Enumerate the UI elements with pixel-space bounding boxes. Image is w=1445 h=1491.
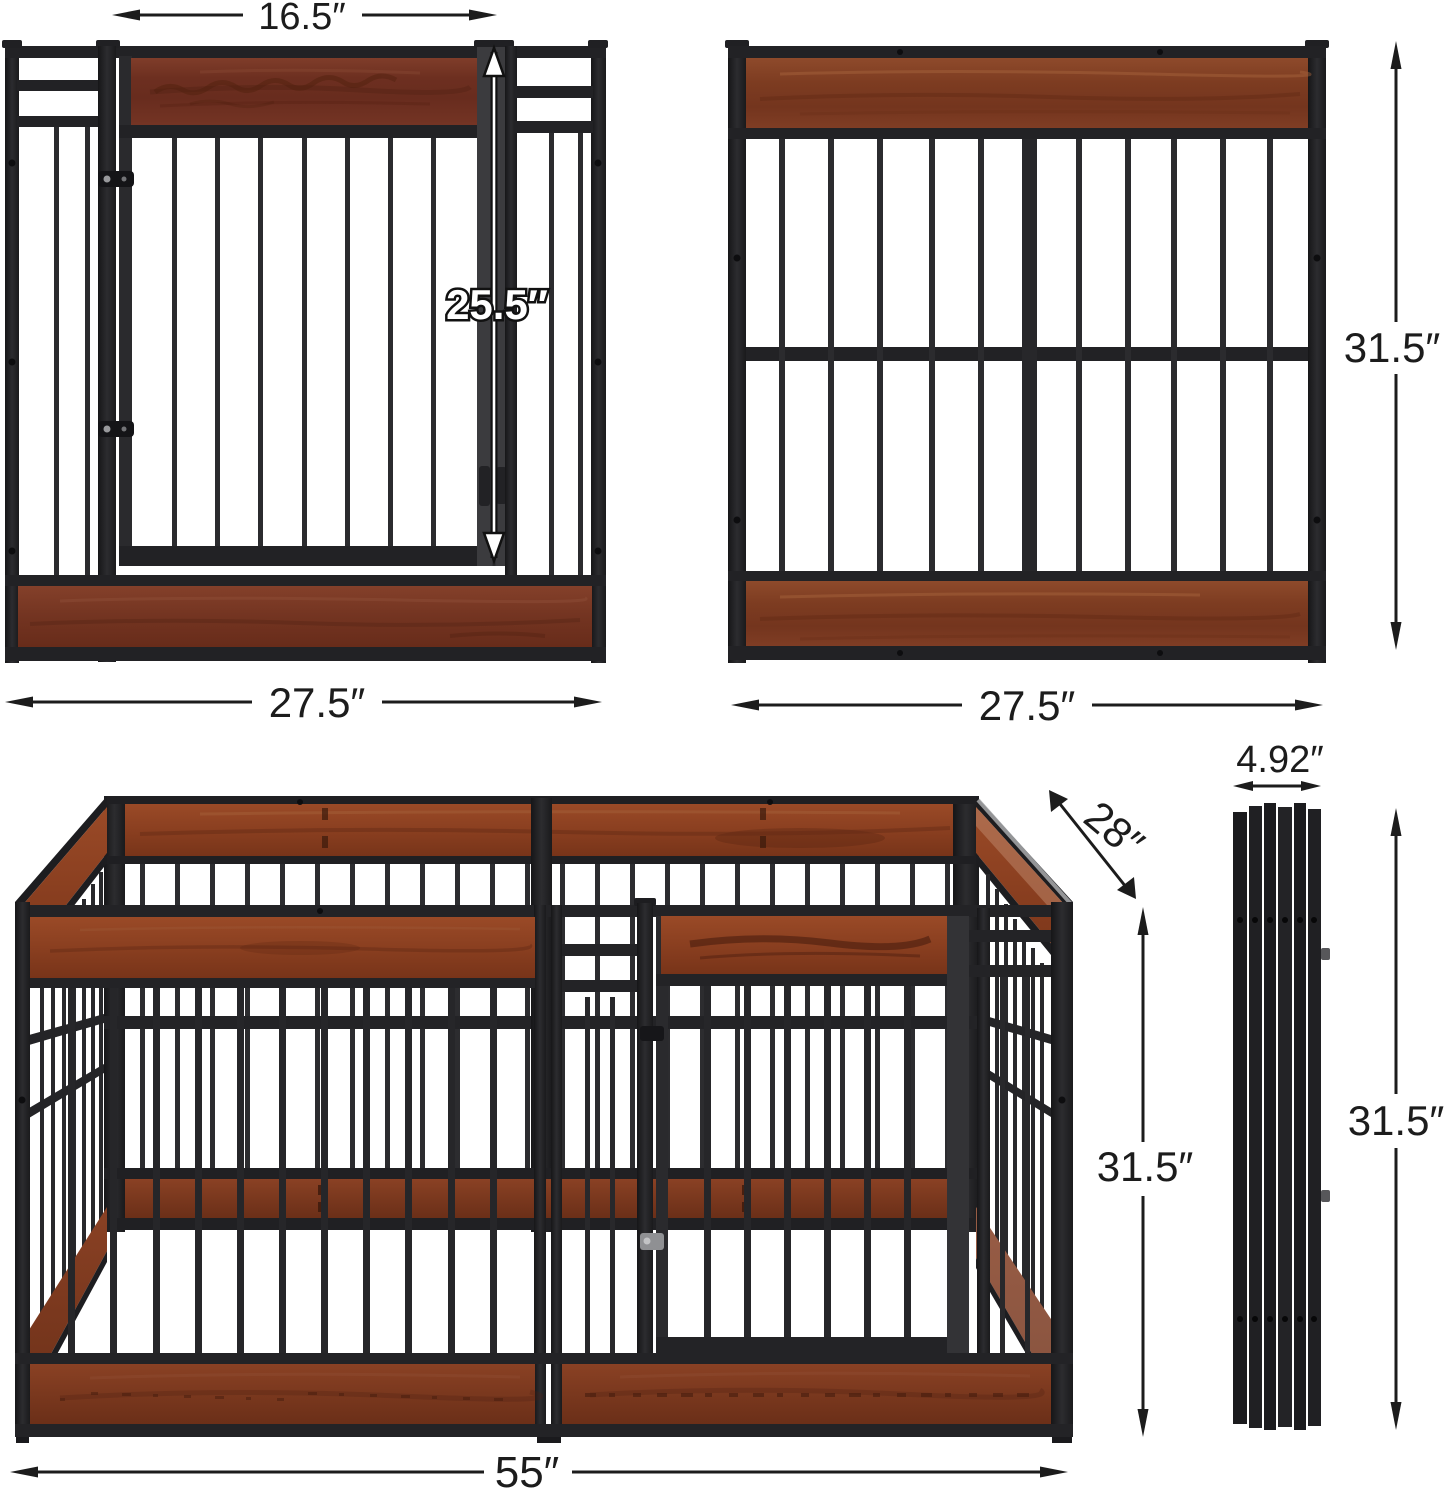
- svg-text:31.5″: 31.5″: [1344, 324, 1441, 371]
- svg-text:31.5″: 31.5″: [1097, 1143, 1194, 1190]
- svg-text:25.5″: 25.5″: [446, 281, 548, 328]
- svg-text:55″: 55″: [495, 1448, 560, 1491]
- svg-text:16.5″: 16.5″: [258, 0, 345, 38]
- svg-text:31.5″: 31.5″: [1348, 1097, 1445, 1144]
- svg-text:27.5″: 27.5″: [979, 682, 1076, 729]
- svg-text:27.5″: 27.5″: [269, 679, 366, 726]
- svg-text:4.92″: 4.92″: [1236, 739, 1323, 781]
